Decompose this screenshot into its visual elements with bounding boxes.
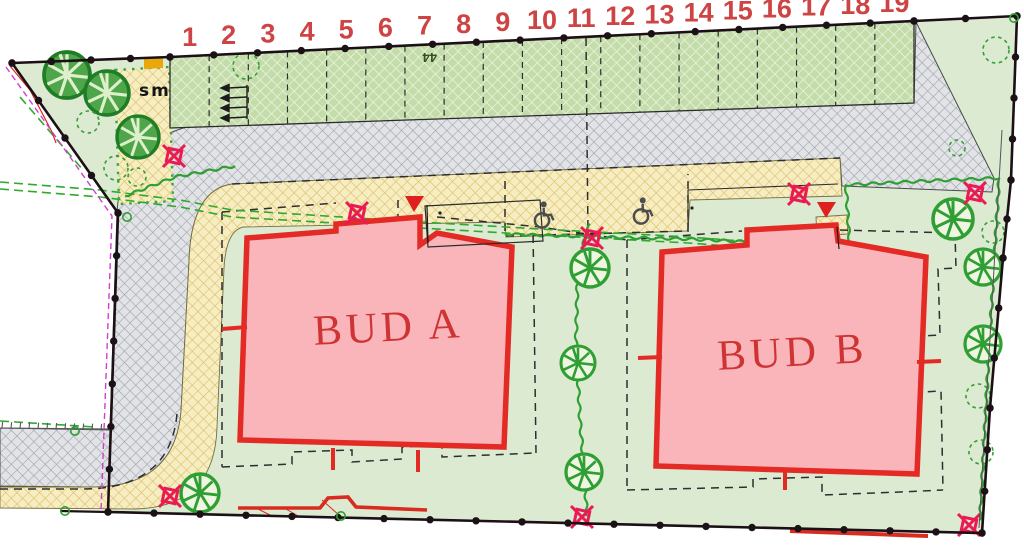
building-b-label: BUD B — [716, 325, 868, 380]
parking-space-number: 3 — [260, 18, 275, 48]
parking-space-number: 18 — [840, 0, 870, 20]
parking-space-number: 19 — [879, 0, 909, 18]
parking-space-number: 13 — [644, 0, 674, 29]
parking-space-number: 2 — [221, 20, 236, 50]
parking-space-number: 9 — [495, 7, 510, 37]
site-plan-drawing: BUD A BUD B — [0, 0, 1024, 548]
street-lamp-icon — [346, 202, 368, 224]
tree-icon — [571, 249, 609, 287]
parking-space-number: 14 — [684, 0, 714, 27]
parking-space-number: 17 — [801, 0, 831, 22]
tree-icon — [85, 71, 129, 115]
tree-icon — [965, 249, 1001, 285]
parking-space-number: 7 — [417, 11, 432, 41]
parking-space-number: 5 — [339, 15, 354, 45]
parking-space-number: 1 — [182, 22, 197, 52]
street-lamp-icon — [964, 182, 986, 204]
parking-space-number: 8 — [456, 9, 471, 39]
gate-marker — [144, 58, 163, 69]
parking-space-number: 16 — [762, 0, 792, 24]
parking-space-number: 12 — [605, 1, 635, 31]
parking-space-number: 6 — [378, 13, 393, 43]
tree-icon — [561, 346, 595, 380]
waste-enclosure-label: sm — [139, 81, 171, 101]
street-lamp-icon — [159, 485, 181, 507]
tree-icon — [181, 474, 219, 512]
tree-icon — [933, 199, 973, 239]
tree-icon — [566, 454, 602, 490]
parking-space-number: 10 — [527, 5, 557, 35]
tree-icon — [117, 116, 159, 158]
parking-space-number: 15 — [723, 0, 753, 26]
building-a-label: BUD A — [312, 300, 464, 355]
adjacent-plot-number: 44 — [422, 50, 437, 65]
site-plan: BUD A BUD B — [0, 0, 1024, 548]
street-lamp-icon — [163, 145, 185, 167]
street-lamp-icon — [581, 227, 603, 249]
street-lamp-icon — [788, 183, 810, 205]
parking-space-number: 11 — [567, 3, 596, 33]
parking-space-number: 4 — [300, 16, 315, 46]
